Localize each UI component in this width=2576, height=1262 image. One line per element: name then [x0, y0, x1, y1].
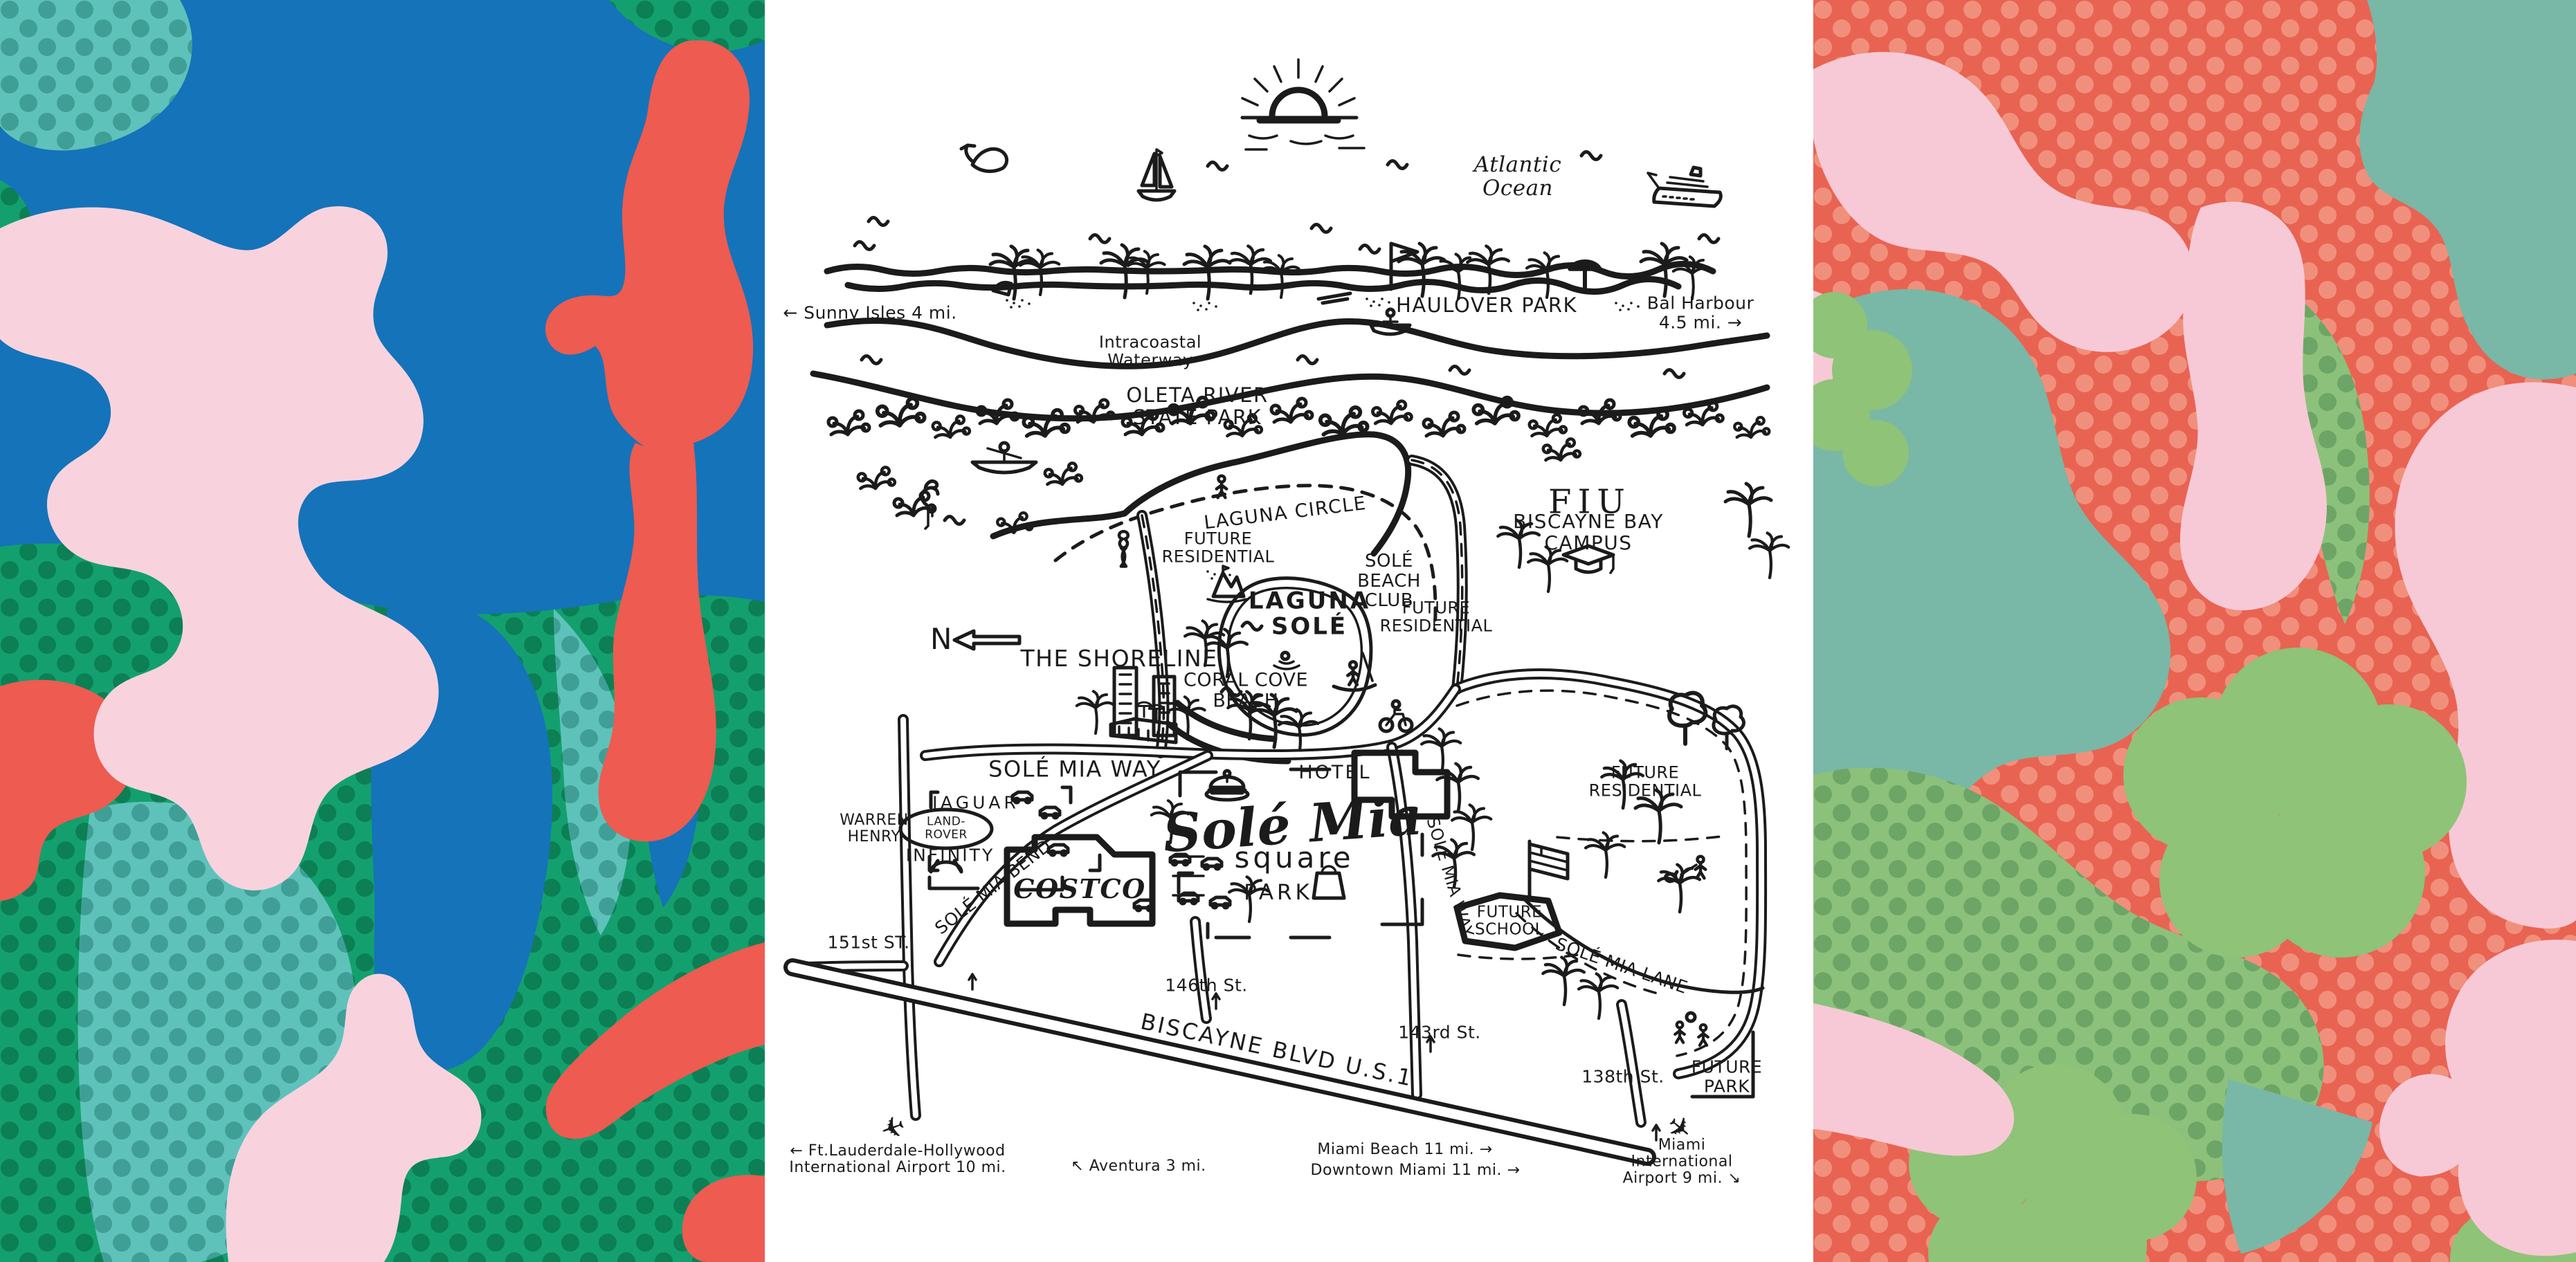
soccer-kids-icon — [1675, 1013, 1708, 1045]
sun-icon — [1242, 60, 1357, 120]
swimmer-icon — [1274, 652, 1299, 669]
whale-icon — [961, 145, 1007, 172]
cruise-ship-icon — [1648, 167, 1721, 206]
cyclist-icon — [1380, 701, 1412, 731]
label-square: square — [1234, 842, 1354, 874]
arrow-151st — [969, 974, 976, 989]
label-future-school: FUTURE SCHOOL — [1475, 904, 1544, 940]
label-compass-n: N — [930, 623, 952, 655]
left-art-shapes — [0, 0, 765, 1262]
label-atlantic-ocean: Atlantic Ocean — [1474, 153, 1561, 200]
label-146th-st: 146th St. — [1165, 976, 1247, 995]
runner-icon — [1217, 476, 1226, 498]
label-haulover-park: HAULOVER PARK — [1396, 295, 1577, 317]
label-miami-beach: Miami Beach 11 mi. → — [1317, 1142, 1492, 1158]
sailboat-icon — [1139, 149, 1174, 200]
label-jaguar: JAGUAR — [932, 793, 1019, 812]
burger-icon — [1206, 771, 1248, 800]
label-138th-st: 138th St. — [1581, 1067, 1664, 1086]
label-the-shoreline: THE SHORELINE — [1021, 646, 1218, 671]
intracoastal-waterway — [813, 320, 1767, 418]
label-downtown-miami: Downtown Miami 11 mi. → — [1311, 1162, 1521, 1179]
label-143rd-st: 143rd St. — [1398, 1023, 1481, 1042]
us-flag-icon — [1530, 841, 1568, 899]
poster: ✈ ✈ Atlantic Ocean ← Sunny Isles 4 mi. H… — [0, 0, 2576, 1262]
label-park: PARK — [1244, 881, 1313, 904]
sandcastle-icon — [1208, 566, 1246, 602]
label-future-residential-e: FUTURE RESIDENTIAL — [1589, 764, 1702, 801]
label-ftl-airport: ← Ft.Lauderdale-Hollywood International … — [789, 1143, 1006, 1176]
label-warren-henry: WARREN HENRY — [840, 812, 909, 845]
arrow-146th — [1213, 994, 1219, 1009]
right-art-panel — [1813, 0, 2576, 1262]
label-fiu-campus: BISCAYNE BAY CAMPUS — [1476, 511, 1701, 554]
compass-arrow-icon — [954, 631, 1019, 649]
label-hotel: HOTEL — [1298, 762, 1371, 783]
label-future-residential-ne: FUTURE RESIDENTIAL — [1380, 599, 1493, 636]
kayaker-icon — [972, 443, 1036, 473]
paddleboarder-icon — [1334, 653, 1375, 691]
label-oleta-river-state-park: OLETA RIVER STATE PARK — [1126, 385, 1268, 429]
label-future-residential-nw: FUTURE RESIDENTIAL — [1162, 530, 1275, 567]
right-art-shapes — [1813, 0, 2576, 1262]
label-future-park: FUTURE PARK — [1691, 1058, 1762, 1096]
label-sunny-isles: ← Sunny Isles 4 mi. — [783, 303, 956, 322]
label-infinity: INFINITY — [906, 845, 995, 865]
map-panel: ✈ ✈ Atlantic Ocean ← Sunny Isles 4 mi. H… — [765, 0, 1813, 1262]
label-coral-cove-beach: CORAL COVE BEACH — [1183, 670, 1308, 711]
label-sole-mia-way-top: SOLÉ MIA WAY — [988, 757, 1161, 781]
flamingo-icon — [922, 482, 964, 529]
left-art-panel — [0, 0, 765, 1262]
label-land-rover: LAND- ROVER — [925, 815, 968, 841]
label-costco: COSTCO — [1013, 875, 1145, 904]
label-miami-airport: Miami International Airport 9 mi. ↘ — [1616, 1137, 1748, 1188]
label-aventura: ↖ Aventura 3 mi. — [1071, 1158, 1206, 1175]
label-intracoastal-waterway: Intracoastal Waterway — [1099, 333, 1201, 370]
label-151st-st: 151st ST. — [827, 933, 909, 952]
label-bal-harbour: Bal Harbour 4.5 mi. → — [1644, 294, 1757, 332]
label-laguna-sole: LAGUNA SOLÉ — [1249, 589, 1370, 641]
